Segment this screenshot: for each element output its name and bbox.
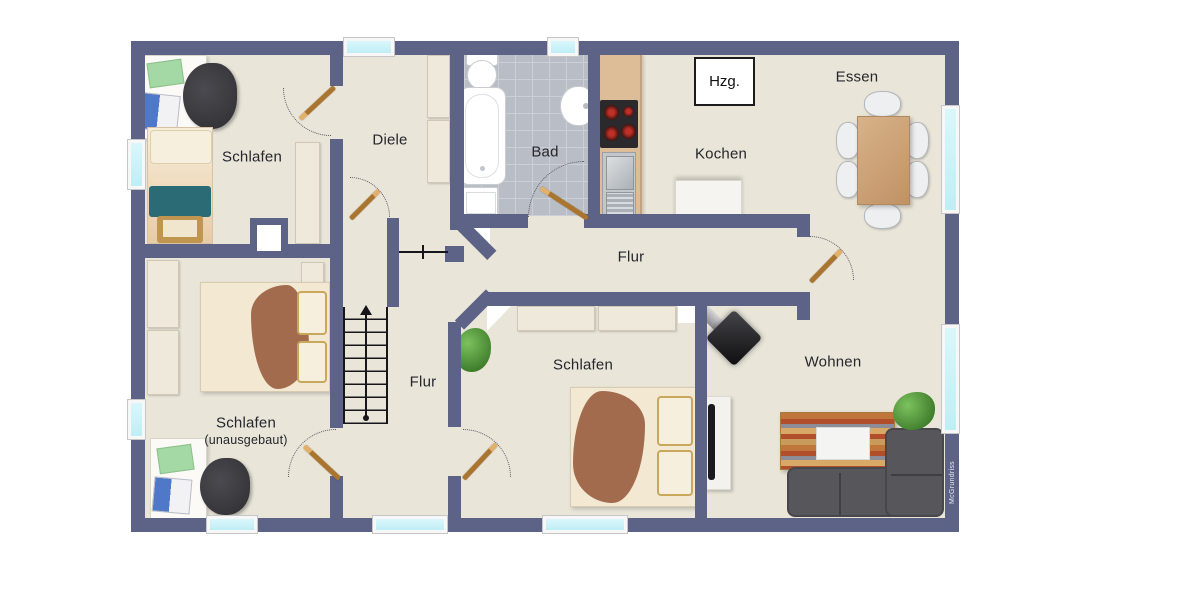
wall <box>330 476 343 518</box>
wall <box>448 322 461 427</box>
wall <box>450 55 464 230</box>
wall <box>584 214 810 228</box>
room-sublabel-unausgebaut: (unausgebaut) <box>204 433 287 447</box>
tv <box>708 404 715 480</box>
sideboard-tray <box>816 427 870 460</box>
wall <box>448 476 461 518</box>
wardrobe <box>295 142 320 244</box>
chimney-void <box>257 225 281 251</box>
sofa-chaise <box>885 428 944 517</box>
hall-cabinet <box>427 120 450 183</box>
brand-label: McGrundriss <box>949 461 956 504</box>
floor-plan: Schlafen Diele Bad Kochen Essen Flur Flu… <box>0 0 1200 600</box>
duvet <box>573 391 645 503</box>
room-label-kochen: Kochen <box>695 146 747 163</box>
stairs-up-arrow <box>360 305 372 315</box>
window <box>127 399 146 440</box>
room-label-schlafen-tl: Schlafen <box>222 149 282 166</box>
desk-pad <box>146 59 184 89</box>
wall <box>387 218 399 307</box>
office-chair <box>200 458 250 515</box>
door-opening <box>678 306 695 323</box>
window <box>941 324 960 434</box>
room-label-diele: Diele <box>372 132 407 149</box>
pillow <box>297 291 327 335</box>
stove-top <box>600 100 638 148</box>
wall <box>797 292 810 320</box>
room-label-schlafen-unausgebaut: Schlafen <box>216 415 276 432</box>
wardrobe <box>147 260 179 328</box>
stairs-start-dot <box>363 415 369 421</box>
hall-cabinet <box>427 55 450 118</box>
desk-pad <box>156 444 194 475</box>
dining-chair <box>864 91 901 117</box>
threshold-tick <box>422 245 424 259</box>
wall <box>145 244 343 258</box>
toilet <box>464 52 500 90</box>
wall <box>330 258 343 428</box>
room-label-flur-unten: Flur <box>410 374 437 391</box>
blanket <box>149 186 211 217</box>
window <box>206 515 258 534</box>
wardrobe <box>598 306 676 331</box>
washing-machine <box>461 187 498 216</box>
double-bed <box>570 387 697 507</box>
double-bed <box>200 282 330 392</box>
pillow <box>657 396 693 446</box>
wall <box>588 55 600 216</box>
single-bed <box>147 127 213 244</box>
pillow <box>297 341 327 383</box>
wall <box>330 55 343 86</box>
wall <box>330 139 343 244</box>
bathtub <box>459 87 506 185</box>
room-label-schlafen-mitte: Schlafen <box>553 357 613 374</box>
wardrobe <box>147 330 179 395</box>
wall <box>797 214 810 237</box>
stairs-center-line <box>365 313 367 419</box>
dining-table <box>857 116 910 205</box>
window <box>941 105 960 214</box>
pillow <box>150 130 212 164</box>
wall <box>487 292 810 306</box>
room-label-wohnen: Wohnen <box>805 354 862 371</box>
kitchen-sink <box>602 152 636 216</box>
room-label-bad: Bad <box>531 144 558 161</box>
room-label-flur: Flur <box>618 249 645 266</box>
wall-outer-top <box>131 41 959 55</box>
brand-watermark: McGrundriss <box>944 448 960 516</box>
window <box>372 515 448 534</box>
window <box>542 515 628 534</box>
heating-label: Hzg. <box>709 73 740 90</box>
office-chair <box>183 63 237 129</box>
pillow <box>657 450 693 496</box>
stairs <box>343 307 388 424</box>
heating-box: Hzg. <box>694 57 755 106</box>
room-label-essen: Essen <box>836 69 879 86</box>
window <box>127 139 146 190</box>
wall <box>695 292 707 518</box>
wall <box>445 246 464 262</box>
window <box>547 37 579 57</box>
bed-bench <box>157 216 203 243</box>
laptop <box>152 476 193 514</box>
wardrobe <box>517 306 595 331</box>
window <box>343 37 395 57</box>
wall-outer-left <box>131 41 145 532</box>
dining-chair <box>864 203 901 229</box>
